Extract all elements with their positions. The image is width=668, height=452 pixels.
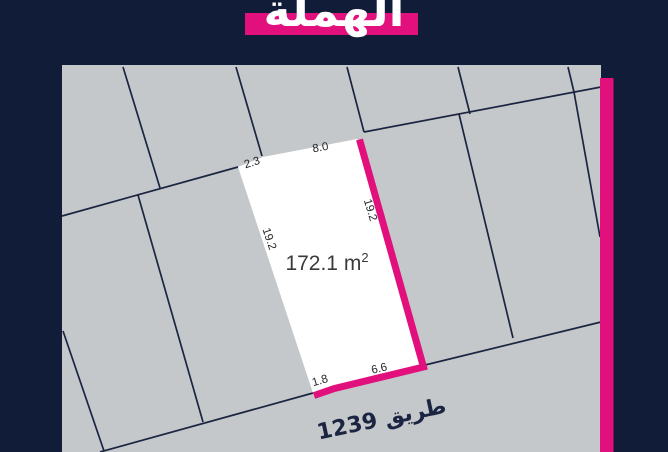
plot-area-label: 172.1 m2 (285, 250, 368, 275)
plot-area-superscript: 2 (361, 250, 368, 265)
right-accent-bar (600, 78, 614, 452)
cadastral-map: 2.3 8.0 19.2 19.2 1.8 6.6 172.1 m2 طريق … (0, 0, 668, 452)
plot-map-page: الهملة 2.3 8.0 19.2 (0, 0, 668, 452)
plot-area-value: 172.1 m (285, 252, 361, 275)
